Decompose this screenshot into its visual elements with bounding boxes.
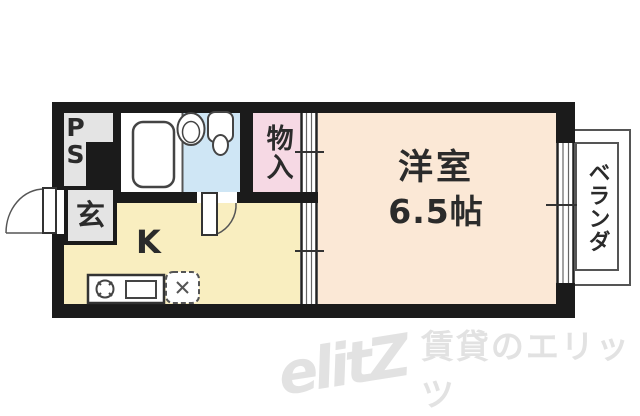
window-lines: [558, 143, 574, 283]
sliding-door-lines-lower: [302, 203, 317, 304]
floor-plan: 物入 洋室 6.5帖 K 玄 P S ベランダ: [0, 0, 640, 416]
fixtures-overlay: [0, 0, 640, 416]
kitchen-counter-icon: [88, 275, 164, 303]
bathtub-icon: [133, 122, 174, 187]
toilet-icon: [178, 112, 234, 155]
stove-icon: [166, 272, 199, 303]
interior-door-icon: [202, 193, 236, 235]
entry-door-icon: [6, 188, 56, 233]
sink-icon: [126, 281, 156, 298]
